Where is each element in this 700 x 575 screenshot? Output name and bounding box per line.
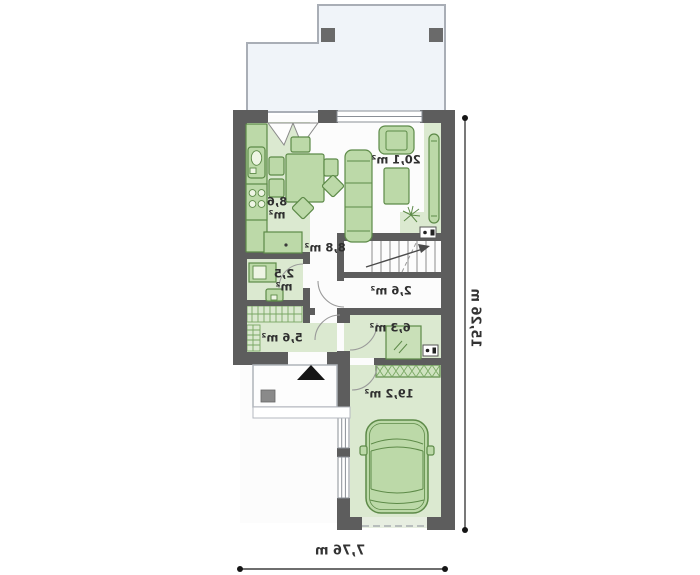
room-label-garage: 19,2 m²: [364, 388, 413, 401]
terrace-post: [321, 28, 335, 42]
chair-icon: [324, 159, 338, 176]
floor-plan: 20,1 m² 8,6 m² 8,8 m² 2,5 m² 2,6 m² 6,3 …: [0, 0, 700, 575]
terrace-post: [429, 28, 443, 42]
dimension-height-label: 15,26 m: [468, 288, 483, 347]
kitchen-cabinet: [264, 232, 302, 253]
sofa-icon: [345, 150, 372, 242]
room-label-wc: 2,5 m²: [271, 267, 298, 292]
car-icon: [360, 420, 434, 513]
garage-shelf: [376, 365, 440, 377]
car-mirror: [427, 446, 434, 455]
terrace: [247, 5, 445, 112]
radiator-icon: [429, 134, 439, 223]
room-label-hall: 8,8 m²: [304, 242, 345, 255]
floor-plan-graphics: [0, 0, 700, 575]
doormat-icon: [261, 390, 275, 402]
room-label-corridor: 5,6 m²: [261, 332, 302, 345]
room-label-kitchen: 8,6 m²: [264, 195, 291, 220]
room-label-living: 20,1 m²: [371, 154, 420, 167]
dining-table-icon: [286, 154, 324, 202]
tv-point: [420, 227, 436, 238]
entrance-porch: [253, 365, 350, 418]
garage-window: [338, 457, 349, 498]
coffee-table-icon: [384, 168, 409, 204]
car-mirror: [360, 446, 367, 455]
dimension-width-label: 7,76 m: [315, 544, 365, 559]
chair-icon: [269, 157, 284, 175]
room-label-utility: 6,3 m²: [369, 322, 410, 335]
chair-icon: [291, 137, 310, 152]
room-label-vestibule: 2,6 m²: [370, 285, 411, 298]
